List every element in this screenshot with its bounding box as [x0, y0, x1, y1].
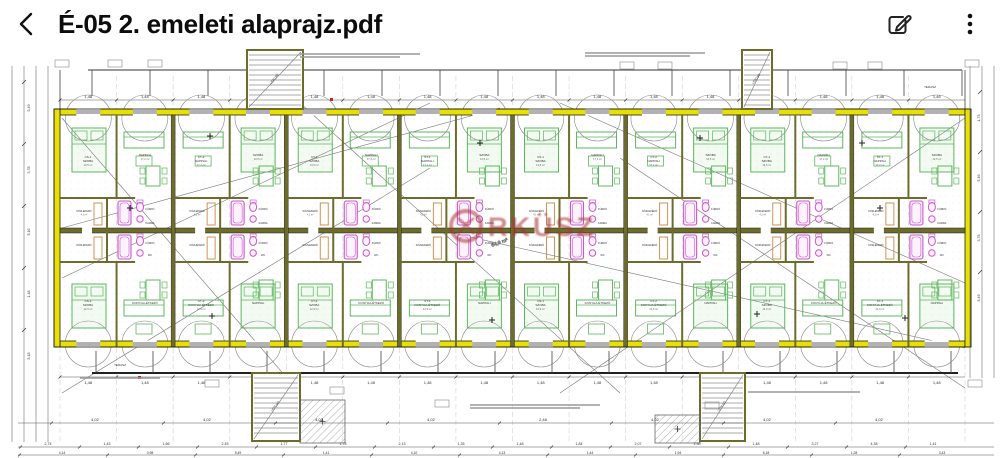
svg-text:2,13: 2,13	[399, 442, 406, 446]
svg-text:FÜRDŐ: FÜRDŐ	[372, 208, 381, 211]
pdf-page-view[interactable]: 64,9 m²1,481,481,481,481,481,481,481,481…	[0, 48, 1000, 458]
svg-text:KONYHA-ÉTKEZŐ: KONYHA-ÉTKEZŐ	[585, 300, 611, 305]
svg-text:13,5 m²: 13,5 m²	[84, 163, 93, 167]
svg-text:12,9 m²: 12,9 m²	[536, 307, 545, 311]
svg-text:1,48: 1,48	[517, 442, 524, 446]
svg-text:NAPPALI: NAPPALI	[647, 159, 660, 163]
svg-text:12,9 m²: 12,9 m²	[197, 307, 206, 311]
svg-text:5,16: 5,16	[977, 175, 981, 182]
edit-pencil-icon	[885, 9, 915, 39]
svg-text:13,5 m²: 13,5 m²	[536, 163, 545, 167]
svg-text:4,13: 4,13	[499, 451, 506, 455]
svg-text:KÖZLEKEDŐ: KÖZLEKEDŐ	[76, 244, 91, 247]
svg-text:SZOBA: SZOBA	[309, 159, 319, 163]
svg-text:KÖZLEKEDŐ: KÖZLEKEDŐ	[76, 210, 91, 213]
svg-text:17,2 m²: 17,2 m²	[141, 157, 150, 161]
svg-text:NAPPALI: NAPPALI	[139, 153, 152, 157]
svg-text:1,48: 1,48	[753, 442, 760, 446]
svg-text:17,2 m²: 17,2 m²	[593, 157, 602, 161]
svg-text:12,9 m²: 12,9 m²	[649, 307, 658, 311]
svg-text:17,2 m²: 17,2 m²	[649, 163, 658, 167]
floorplan-drawing[interactable]: 64,9 m²1,481,481,481,481,481,481,481,481…	[0, 48, 1000, 458]
svg-text:1,48: 1,48	[141, 380, 150, 385]
svg-text:KONYHA-ÉTKEZŐ: KONYHA-ÉTKEZŐ	[188, 302, 214, 307]
svg-text:FÜRDŐ: FÜRDŐ	[372, 242, 381, 245]
kebab-menu-icon	[957, 9, 983, 39]
svg-text:SZOBA: SZOBA	[762, 159, 772, 163]
svg-text:1,48: 1,48	[537, 380, 546, 385]
svg-text:1,48: 1,48	[593, 380, 602, 385]
svg-text:WC: WC	[148, 254, 152, 257]
stairwell-top-left: LÉPCSŐ	[247, 50, 303, 109]
svg-text:FÜRDŐ: FÜRDŐ	[259, 208, 268, 211]
svg-text:17,2 m²: 17,2 m²	[875, 163, 884, 167]
svg-text:KAMRA: KAMRA	[146, 222, 155, 225]
svg-text:1,48: 1,48	[424, 380, 433, 385]
svg-text:KONYHA-ÉTKEZŐ: KONYHA-ÉTKEZŐ	[641, 302, 667, 307]
overflow-menu-button[interactable]	[948, 2, 992, 46]
svg-text:KÖZLEKEDŐ: KÖZLEKEDŐ	[755, 210, 770, 213]
svg-text:KAMRA: KAMRA	[259, 222, 268, 225]
svg-text:4,38: 4,38	[871, 442, 878, 446]
svg-text:NAPPALI: NAPPALI	[365, 153, 378, 157]
svg-text:FÜRDŐ: FÜRDŐ	[711, 242, 720, 245]
svg-text:13,5 m²: 13,5 m²	[480, 157, 489, 161]
svg-text:WC: WC	[261, 254, 265, 257]
svg-text:13,5 m²: 13,5 m²	[932, 157, 941, 161]
svg-text:TERASZ: TERASZ	[114, 363, 126, 367]
svg-text:4,1 m²: 4,1 m²	[759, 214, 766, 217]
svg-text:4,14: 4,14	[59, 451, 66, 455]
svg-text:2,48: 2,48	[539, 417, 548, 422]
svg-text:SZOBA: SZOBA	[535, 303, 545, 307]
svg-text:NAPPALI: NAPPALI	[421, 159, 434, 163]
svg-text:NAPPALI: NAPPALI	[478, 301, 491, 305]
svg-text:KÖZLEKEDŐ: KÖZLEKEDŐ	[868, 244, 883, 247]
svg-text:1,35: 1,35	[458, 442, 465, 446]
svg-text:4,02: 4,02	[91, 417, 100, 422]
svg-text:KAMRA: KAMRA	[598, 222, 607, 225]
svg-text:NAPPALI: NAPPALI	[252, 301, 265, 305]
svg-text:FÜRDŐ: FÜRDŐ	[937, 208, 946, 211]
svg-text:KÖZLEKEDŐ: KÖZLEKEDŐ	[189, 244, 204, 247]
svg-text:17,2 m²: 17,2 m²	[819, 157, 828, 161]
svg-text:17,2 m²: 17,2 m²	[423, 163, 432, 167]
stairwell-top-right: LÉPCSŐ	[742, 50, 772, 109]
svg-text:FÜRDŐ: FÜRDŐ	[259, 242, 268, 245]
stairwell-bottom-left: LÉPCSŐ	[252, 373, 300, 441]
svg-text:12,9 m²: 12,9 m²	[762, 307, 771, 311]
svg-text:17,2 m²: 17,2 m²	[197, 163, 206, 167]
svg-text:SZOBA: SZOBA	[253, 153, 263, 157]
svg-text:1,73: 1,73	[977, 115, 981, 122]
svg-text:NAPPALI: NAPPALI	[818, 153, 831, 157]
svg-text:KÖZLEKEDŐ: KÖZLEKEDŐ	[189, 210, 204, 213]
svg-text:4,02: 4,02	[203, 417, 212, 422]
svg-text:17,2 m²: 17,2 m²	[367, 157, 376, 161]
svg-text:13,5 m²: 13,5 m²	[706, 157, 715, 161]
svg-text:13,5 m²: 13,5 m²	[310, 163, 319, 167]
svg-text:SZOBA: SZOBA	[83, 159, 93, 163]
svg-text:KÖZLEKEDŐ: KÖZLEKEDŐ	[416, 244, 431, 247]
svg-text:KÖZLEKEDŐ: KÖZLEKEDŐ	[642, 244, 657, 247]
svg-text:12,9 m²: 12,9 m²	[875, 307, 884, 311]
svg-text:WC: WC	[827, 254, 831, 257]
svg-text:WC: WC	[940, 254, 944, 257]
svg-text:RKÜSZ: RKÜSZ	[488, 212, 596, 242]
svg-text:SZOBA: SZOBA	[706, 153, 716, 157]
svg-text:4,02: 4,02	[651, 417, 660, 422]
svg-text:1,48: 1,48	[763, 380, 772, 385]
svg-text:5,49: 5,49	[27, 105, 31, 112]
svg-text:SZOBA: SZOBA	[762, 303, 772, 307]
svg-text:1,44: 1,44	[587, 451, 594, 455]
svg-text:4,02: 4,02	[875, 417, 884, 422]
exterior-wall	[60, 109, 965, 116]
svg-text:WC: WC	[374, 254, 378, 257]
svg-text:5,18: 5,18	[27, 353, 31, 360]
svg-text:WC: WC	[487, 254, 491, 257]
svg-text:12,9 m²: 12,9 m²	[84, 307, 93, 311]
svg-text:KAMRA: KAMRA	[937, 222, 946, 225]
svg-text:1,48: 1,48	[650, 380, 659, 385]
svg-text:FÜRDŐ: FÜRDŐ	[146, 208, 155, 211]
svg-text:4,02: 4,02	[315, 417, 324, 422]
svg-text:4,10: 4,10	[411, 451, 418, 455]
svg-text:2,45: 2,45	[222, 442, 229, 446]
svg-text:KÖZLEKEDŐ: KÖZLEKEDŐ	[303, 210, 318, 213]
svg-text:1,28: 1,28	[851, 451, 858, 455]
svg-text:1,30: 1,30	[694, 442, 701, 446]
edit-button[interactable]	[878, 2, 922, 46]
svg-text:1,48: 1,48	[84, 380, 93, 385]
svg-text:0,98: 0,98	[147, 451, 154, 455]
svg-text:1,48: 1,48	[876, 380, 885, 385]
svg-text:4,1 m²: 4,1 m²	[646, 214, 653, 217]
svg-text:SZOBA: SZOBA	[83, 303, 93, 307]
svg-text:12,9 m²: 12,9 m²	[310, 307, 319, 311]
svg-text:3,78: 3,78	[977, 235, 981, 242]
svg-text:NAPPALI: NAPPALI	[931, 301, 944, 305]
header-bar: É-05 2. emeleti alaprajz.pdf	[0, 0, 1000, 48]
svg-text:WC: WC	[600, 254, 604, 257]
svg-text:6,18: 6,18	[763, 451, 770, 455]
svg-text:KONYHA-ÉTKEZŐ: KONYHA-ÉTKEZŐ	[867, 302, 893, 307]
svg-text:1,75: 1,75	[340, 442, 347, 446]
svg-text:5,49: 5,49	[235, 451, 242, 455]
svg-text:FÜRDŐ: FÜRDŐ	[937, 242, 946, 245]
pdf-viewer-app: É-05 2. emeleti alaprajz.pdf 64,9 m²1,48…	[0, 0, 1000, 458]
svg-text:KONYHA-ÉTKEZŐ: KONYHA-ÉTKEZŐ	[358, 300, 384, 305]
svg-text:FÜRDŐ: FÜRDŐ	[485, 242, 494, 245]
svg-text:SZOBA: SZOBA	[535, 159, 545, 163]
svg-text:KÖZLEKEDŐ: KÖZLEKEDŐ	[755, 244, 770, 247]
svg-text:4,1 m²: 4,1 m²	[873, 214, 880, 217]
exterior-wall-left	[54, 109, 60, 347]
svg-text:TERASZ: TERASZ	[924, 85, 936, 89]
svg-text:KONYHA-ÉTKEZŐ: KONYHA-ÉTKEZŐ	[811, 300, 837, 305]
svg-text:KAMRA: KAMRA	[372, 222, 381, 225]
chevron-left-icon	[13, 9, 43, 39]
svg-text:KÖZLEKEDŐ: KÖZLEKEDŐ	[416, 210, 431, 213]
svg-text:4,1 m²: 4,1 m²	[194, 214, 201, 217]
svg-text:4,1 m²: 4,1 m²	[307, 214, 314, 217]
svg-text:2,07: 2,07	[635, 442, 642, 446]
svg-text:2,74: 2,74	[45, 442, 52, 446]
svg-text:13,5 m²: 13,5 m²	[254, 157, 263, 161]
svg-text:KÖZLEKEDŐ: KÖZLEKEDŐ	[642, 210, 657, 213]
svg-text:SZOBA: SZOBA	[309, 303, 319, 307]
svg-text:KÖZLEKEDŐ: KÖZLEKEDŐ	[868, 210, 883, 213]
svg-text:FÜRDŐ: FÜRDŐ	[598, 208, 607, 211]
svg-text:KÖZLEKEDŐ: KÖZLEKEDŐ	[303, 244, 318, 247]
svg-text:1,41: 1,41	[323, 451, 330, 455]
svg-text:KÖZLEKEDŐ: KÖZLEKEDŐ	[529, 244, 544, 247]
svg-text:KAMRA: KAMRA	[711, 222, 720, 225]
document-title: É-05 2. emeleti alaprajz.pdf	[58, 9, 878, 40]
svg-text:FÜRDŐ: FÜRDŐ	[146, 242, 155, 245]
svg-text:KONYHA-ÉTKEZŐ: KONYHA-ÉTKEZŐ	[132, 300, 158, 305]
svg-text:1,48: 1,48	[27, 291, 31, 298]
back-button[interactable]	[6, 2, 50, 46]
svg-text:4,1 m²: 4,1 m²	[420, 214, 427, 217]
svg-text:1,48: 1,48	[820, 380, 829, 385]
svg-text:NAPPALI: NAPPALI	[874, 159, 887, 163]
svg-text:3,43: 3,43	[939, 451, 946, 455]
svg-text:4,02: 4,02	[763, 417, 772, 422]
svg-text:1,43: 1,43	[104, 442, 111, 446]
svg-text:5,49: 5,49	[977, 295, 981, 302]
svg-text:1,41: 1,41	[930, 442, 937, 446]
svg-text:FÜRDŐ: FÜRDŐ	[824, 208, 833, 211]
svg-text:4,1 m²: 4,1 m²	[81, 214, 88, 217]
paved-terrace-pad	[655, 415, 700, 443]
bottom-dimension-rows: 4,024,024,024,022,484,024,024,022,741,43…	[18, 417, 994, 457]
svg-text:4,02: 4,02	[427, 417, 436, 422]
svg-text:SZOBA: SZOBA	[479, 153, 489, 157]
svg-text:NAPPALI: NAPPALI	[591, 153, 604, 157]
svg-text:FÜRDŐ: FÜRDŐ	[824, 242, 833, 245]
svg-text:FÜRDŐ: FÜRDŐ	[598, 242, 607, 245]
svg-text:NAPPALI: NAPPALI	[195, 159, 208, 163]
stairwell-bottom-right: LÉPCSŐ	[700, 373, 745, 441]
svg-text:1,66: 1,66	[163, 442, 170, 446]
svg-text:KAMRA: KAMRA	[824, 222, 833, 225]
svg-text:WC: WC	[714, 254, 718, 257]
svg-text:1,94: 1,94	[675, 451, 682, 455]
svg-text:12,9 m²: 12,9 m²	[423, 307, 432, 311]
svg-text:1,77: 1,77	[281, 442, 288, 446]
svg-text:KONYHA-ÉTKEZŐ: KONYHA-ÉTKEZŐ	[415, 302, 441, 307]
svg-text:3,78: 3,78	[27, 167, 31, 174]
svg-text:3,27: 3,27	[812, 442, 819, 446]
svg-text:NAPPALI: NAPPALI	[704, 301, 717, 305]
svg-text:1,84: 1,84	[576, 442, 583, 446]
svg-text:5,16: 5,16	[27, 229, 31, 236]
svg-text:FÜRDŐ: FÜRDŐ	[485, 208, 494, 211]
svg-text:1,48: 1,48	[367, 380, 376, 385]
svg-text:SZOBA: SZOBA	[932, 153, 942, 157]
svg-text:13,5 m²: 13,5 m²	[762, 163, 771, 167]
svg-text:1,48: 1,48	[933, 380, 942, 385]
svg-text:1,48: 1,48	[311, 380, 320, 385]
svg-text:FÜRDŐ: FÜRDŐ	[711, 208, 720, 211]
svg-text:1,48: 1,48	[480, 380, 489, 385]
